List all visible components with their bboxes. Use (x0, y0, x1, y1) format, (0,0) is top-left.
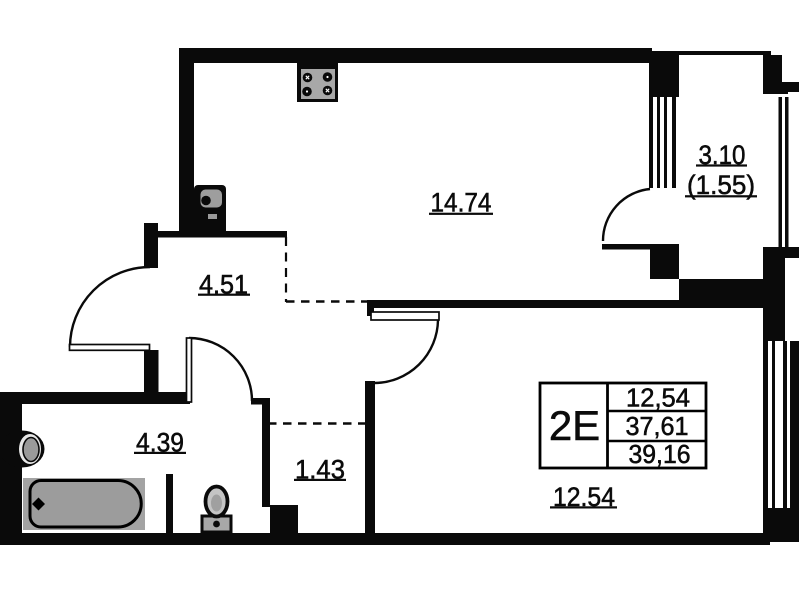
svg-text:37,61: 37,61 (626, 413, 689, 441)
svg-text:12,54: 12,54 (626, 385, 690, 413)
svg-text:39,16: 39,16 (629, 441, 691, 469)
svg-text:2E: 2E (549, 402, 600, 449)
